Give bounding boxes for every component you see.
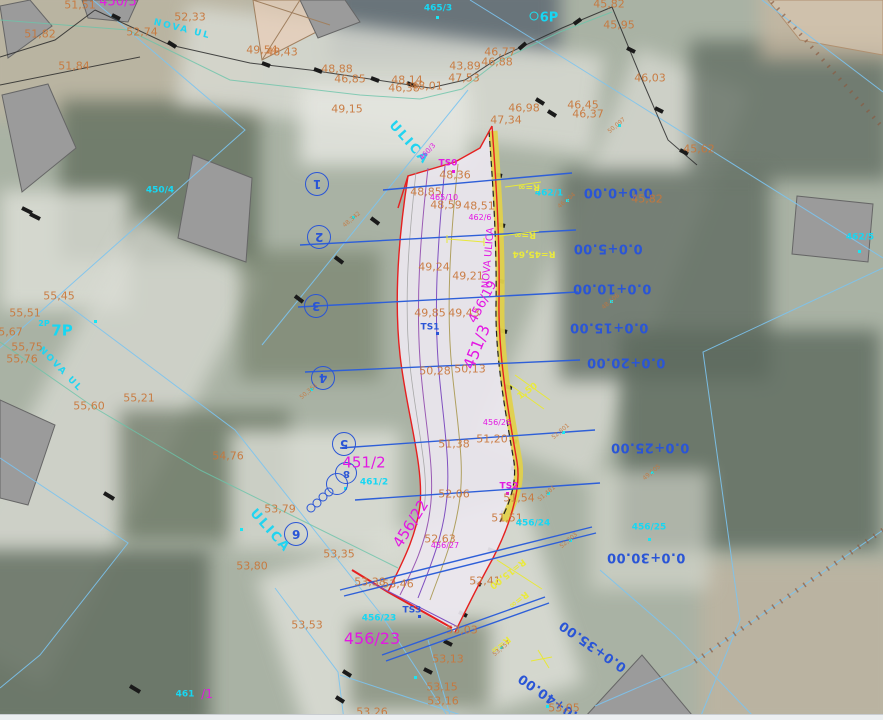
elevation-label: 45,95 <box>603 20 635 31</box>
parcel-label-cyan: 456/25 <box>632 524 667 533</box>
point-elevation-label: 52,303 <box>559 532 579 550</box>
elevation-label: 53,46 <box>382 579 414 590</box>
parcel-label-cyan: 6P <box>540 12 559 25</box>
elevation-label: 50,28 <box>419 366 451 377</box>
parcel-label-cyan: 2P <box>38 320 49 328</box>
elevation-label: 49,15 <box>331 104 363 115</box>
elevation-label: 49,24 <box>418 262 450 273</box>
radius-label: 1,50 <box>516 382 539 402</box>
elevation-label: 45,62 <box>683 144 715 155</box>
station-label: 0.0+30.00 <box>607 551 686 564</box>
station-label: 0.0+20.00 <box>587 356 666 369</box>
elevation-label: 53,38 <box>354 577 386 588</box>
parcel-label-magenta: /1 <box>201 688 213 700</box>
elevation-label: 47,53 <box>448 73 480 84</box>
elevation-label: 55,75 <box>11 342 43 353</box>
elevation-label: 49,85 <box>414 308 446 319</box>
parcel-label-cyan: 461/2 <box>360 479 388 488</box>
parcel-label-magenta: 450/5 <box>99 0 136 9</box>
parcel-label-magenta: 462/6 <box>468 214 491 222</box>
elevation-label: 43,89 <box>449 61 481 72</box>
elevation-label: 45,82 <box>593 0 625 10</box>
elevation-label: 53,05 <box>548 703 580 714</box>
elevation-label: 55,51 <box>9 308 41 319</box>
elevation-label: 48,51 <box>463 201 495 212</box>
point-elevation-label: 50,097 <box>607 117 627 135</box>
elevation-label: 51,84 <box>58 61 90 72</box>
street-label: NOVA UL <box>36 346 83 394</box>
elevation-label: 53,53 <box>291 620 323 631</box>
elevation-label: 55,60 <box>73 401 105 412</box>
radius-label: R=45,64 <box>513 249 556 258</box>
parcel-label-cyan: 456/24 <box>516 520 551 529</box>
elevation-label: 48,01 <box>411 81 443 92</box>
elevation-label: 53,80 <box>236 561 268 572</box>
point-elevation-label: 52,801 <box>551 423 571 441</box>
map-canvas[interactable]: 1234568 ULICAULICANOVA ULNOVA UL0.0+0.00… <box>0 0 883 720</box>
elevation-label: 55,45 <box>43 291 75 302</box>
station-label: 0.0+25.00 <box>611 441 690 454</box>
point-elevation-label: 50,364 <box>299 383 319 401</box>
elevation-label: 53,35 <box>323 549 355 560</box>
point-elevation-label: 48,106 <box>601 293 621 311</box>
parcel-label-magenta: 456/19 <box>467 279 500 325</box>
parcel-label-cyan: 461 <box>176 691 195 700</box>
station-label: 0.0+10.00 <box>573 282 652 295</box>
radius-label: R=∞ <box>507 589 530 610</box>
elevation-label: 45,82 <box>631 194 663 205</box>
elevation-label: 49,21 <box>452 271 484 282</box>
elevation-label: 48,43 <box>266 47 298 58</box>
elevation-label: 51,38 <box>438 439 470 450</box>
parcel-label-magenta: 465/10 <box>430 194 458 202</box>
point-elevation-label: 51,481 <box>537 485 557 503</box>
traverse-point-label: TS2 <box>500 483 519 492</box>
station-label: 0.0+15.00 <box>570 321 649 334</box>
elevation-label: 46,88 <box>481 57 513 68</box>
elevation-label: 47,34 <box>490 115 522 126</box>
station-label: 0.0+5.00 <box>573 242 642 255</box>
elevation-label: 46,85 <box>334 74 366 85</box>
elevation-label: 54,76 <box>212 451 244 462</box>
parcel-label-magenta: 451/3 <box>461 323 493 372</box>
parcel-label-magenta: 456/23 <box>344 631 400 647</box>
radius-label: R=∞ <box>514 230 536 239</box>
elevation-label: 46,03 <box>634 73 666 84</box>
station-label: 0.0+35.00 <box>557 618 629 674</box>
traverse-point-label: TS1 <box>421 324 440 333</box>
parcel-label-cyan: 456/23 <box>362 615 397 624</box>
elevation-label: 52,06 <box>438 489 470 500</box>
elevation-label: 53,03 <box>446 625 478 636</box>
elevation-label: 46,37 <box>572 109 604 120</box>
elevation-label: 52,74 <box>126 27 158 38</box>
parcel-label-cyan: 462/5 <box>846 234 874 243</box>
traverse-point-label: TS3 <box>403 607 422 616</box>
elevation-label: 53,79 <box>264 504 296 515</box>
elevation-label: 51,82 <box>24 29 56 40</box>
elevation-label: 55,76 <box>6 354 38 365</box>
elevation-label: 53,15 <box>426 682 458 693</box>
parcel-label-magenta: 456/26 <box>483 419 511 427</box>
point-elevation-label: 48,342 <box>342 211 362 229</box>
elevation-label: 53,13 <box>432 654 464 665</box>
elevation-label: 51,51 <box>64 0 96 11</box>
elevation-label: 48,36 <box>439 170 471 181</box>
radius-label: R=∞ <box>518 182 540 191</box>
radius-label: R=15,00 <box>487 556 526 590</box>
elevation-label: 51,20 <box>476 434 508 445</box>
parcel-label-cyan: 450/4 <box>146 187 174 196</box>
elevation-label: 46,98 <box>508 103 540 114</box>
map-labels: ULICAULICANOVA ULNOVA UL0.0+0.000.0+5.00… <box>0 0 883 720</box>
traverse-point-label: TS0 <box>439 160 458 169</box>
point-elevation-label: 49,505 <box>642 464 662 482</box>
elevation-label: 51,54 <box>503 493 535 504</box>
parcel-label-cyan: 7P <box>51 324 72 339</box>
parcel-label-magenta: 456/27 <box>431 542 459 550</box>
window-bottom-bar <box>0 714 883 720</box>
elevation-label: 55,21 <box>123 393 155 404</box>
parcel-label-magenta: 451/2 <box>342 456 385 471</box>
parcel-label-cyan: 465/3 <box>424 5 452 14</box>
elevation-label: 55,67 <box>0 327 23 338</box>
elevation-label: 52,33 <box>174 12 206 23</box>
elevation-label: 53,16 <box>427 696 459 707</box>
